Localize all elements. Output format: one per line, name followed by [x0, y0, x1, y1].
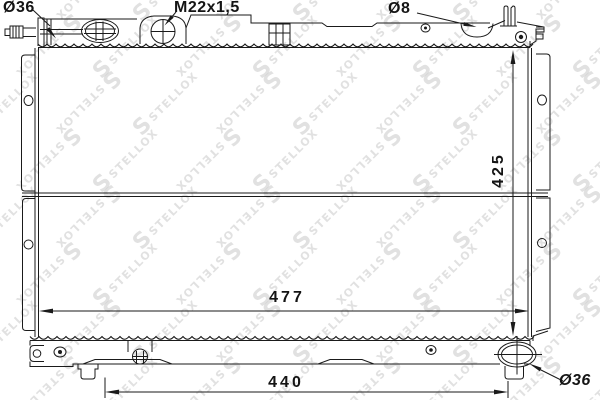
core-seam [22, 193, 548, 197]
top-tank [5, 6, 544, 48]
outlet-diameter-label: Ø36 [559, 373, 591, 389]
right-side-bracket [533, 54, 550, 341]
leader-hole-8 [417, 13, 477, 27]
dimension-lines [39, 50, 529, 398]
filler-neck [140, 16, 186, 44]
outlet-pipe [494, 336, 542, 379]
radiator-drawing-canvas: SSTELLOXSSTELLOXSSTELLOXSSTELLOXSSTELLOX… [0, 0, 600, 400]
tank-scallop [30, 337, 534, 340]
lower-width-dimension-label: 440 [263, 375, 309, 391]
drain-plug [78, 364, 98, 379]
tank-bracket [269, 24, 290, 45]
mount-hole [24, 96, 33, 106]
radiator-line-drawing [0, 0, 600, 400]
oval-cap [82, 20, 119, 43]
mount-hole-diameter-label: Ø8 [388, 1, 410, 17]
inlet-diameter-label: Ø36 [3, 0, 35, 16]
mount-hole [24, 240, 33, 249]
height-dimension-label: 425 [481, 152, 517, 188]
center-fitting [128, 341, 152, 364]
mount-hole [538, 239, 547, 248]
core-width-dimension-label: 477 [264, 290, 310, 306]
left-mount-tab [30, 346, 44, 362]
bottom-tank [30, 337, 534, 380]
leader-outlet-36 [529, 364, 563, 382]
dimension-477 [39, 309, 529, 314]
inlet-stub [5, 26, 36, 38]
leader-lines [33, 10, 563, 381]
filler-thread-label: M22x1,5 [174, 0, 240, 16]
mounting-pins [500, 6, 517, 26]
mount-hole [538, 95, 547, 105]
